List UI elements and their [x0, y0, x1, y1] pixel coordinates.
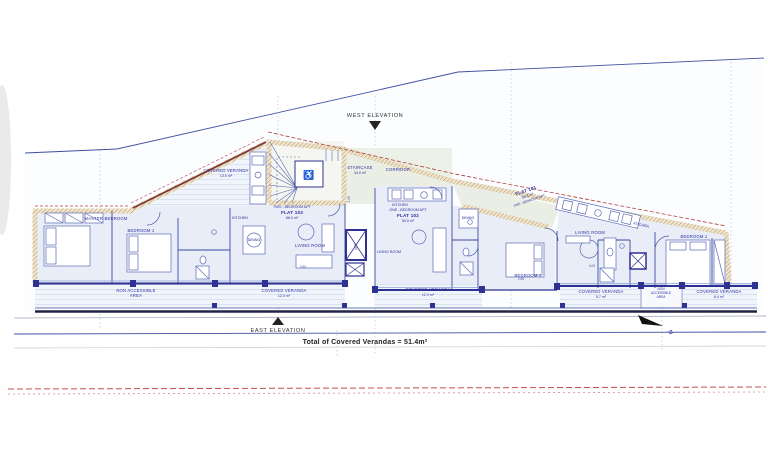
label-veranda2-area: 12.0 m²: [278, 294, 291, 298]
label-non-accessible-right-3: AREA: [657, 295, 667, 299]
label-living-flat102: LIVING ROOM: [377, 250, 401, 254]
floor-plan-canvas: WEST ELEVATION: [0, 0, 768, 473]
label-veranda4: COVERED VERANDA: [578, 289, 623, 294]
label-staircase-area: 34.0 m²: [354, 171, 367, 175]
label-veranda5-area: 8.4 m²: [714, 295, 725, 299]
label-corridor: CORRIDOR: [386, 167, 410, 172]
label-veranda5: COVERED VERANDA: [696, 289, 741, 294]
north-label: N: [666, 329, 673, 335]
label-veranda3: COVERED VERANDA: [405, 287, 450, 292]
dim-4: 2.85: [518, 277, 524, 281]
label-veranda1: COVERED VERANDA: [203, 168, 248, 173]
label-dining-flat103: DINING: [248, 238, 261, 242]
label-veranda2: COVERED VERANDA: [261, 288, 306, 293]
label-living-flat103: LIVING ROOM: [295, 243, 325, 248]
east-elevation-arrow-icon: [272, 317, 284, 325]
label-kitchen-flat102: KITCHEN: [392, 203, 408, 207]
label-staircase: STAIRCASE: [347, 165, 372, 170]
label-non-accessible-left-2: AREA: [130, 293, 142, 298]
label-flat103-type: TWO - BEDROOM APT: [273, 205, 312, 209]
label-master-bedroom: MASTER BEDROOM: [84, 216, 127, 221]
label-bedroom1-flat101: BEDROOM 1: [681, 234, 708, 239]
label-flat103-name: FLAT 103: [281, 210, 303, 215]
label-flat102-type: ONE - BEDROOM APT: [389, 208, 427, 212]
dim-2: 4.05: [589, 264, 595, 268]
label-veranda1-area: 13.0 m²: [220, 174, 233, 178]
label-dining-flat102: DINING: [462, 216, 475, 220]
scan-shadow: [0, 85, 11, 235]
floor-plan-sheet: WEST ELEVATION: [0, 0, 768, 473]
label-lift: LIFT: [354, 244, 358, 251]
label-flat103-area: 86.0 m²: [286, 216, 299, 220]
dim-3: 3.85: [300, 265, 306, 269]
label-flat102-name: FLAT 102: [397, 213, 419, 218]
west-elevation-label: WEST ELEVATION: [347, 113, 404, 119]
east-elevation-label: EAST ELEVATION: [250, 328, 305, 334]
label-bedroom1-flat103: BEDROOM 1: [128, 228, 155, 233]
label-veranda3-area: 12.3 m²: [422, 293, 435, 297]
dim-1: 1.00: [347, 196, 351, 202]
label-living-flat101: LIVING ROOM: [575, 230, 605, 235]
wheelchair-icon: ♿: [303, 169, 314, 180]
red-dashed-lines: [8, 387, 766, 394]
label-veranda4-area: 5.7 m²: [596, 295, 607, 299]
east-elevation-marker: EAST ELEVATION: [250, 317, 305, 334]
total-verandas-note: Total of Covered Verandas = 51.4m²: [303, 339, 428, 346]
label-kitchen-flat103: KITCHEN: [232, 216, 248, 220]
label-flat102-area: 50.0 m²: [402, 219, 415, 223]
